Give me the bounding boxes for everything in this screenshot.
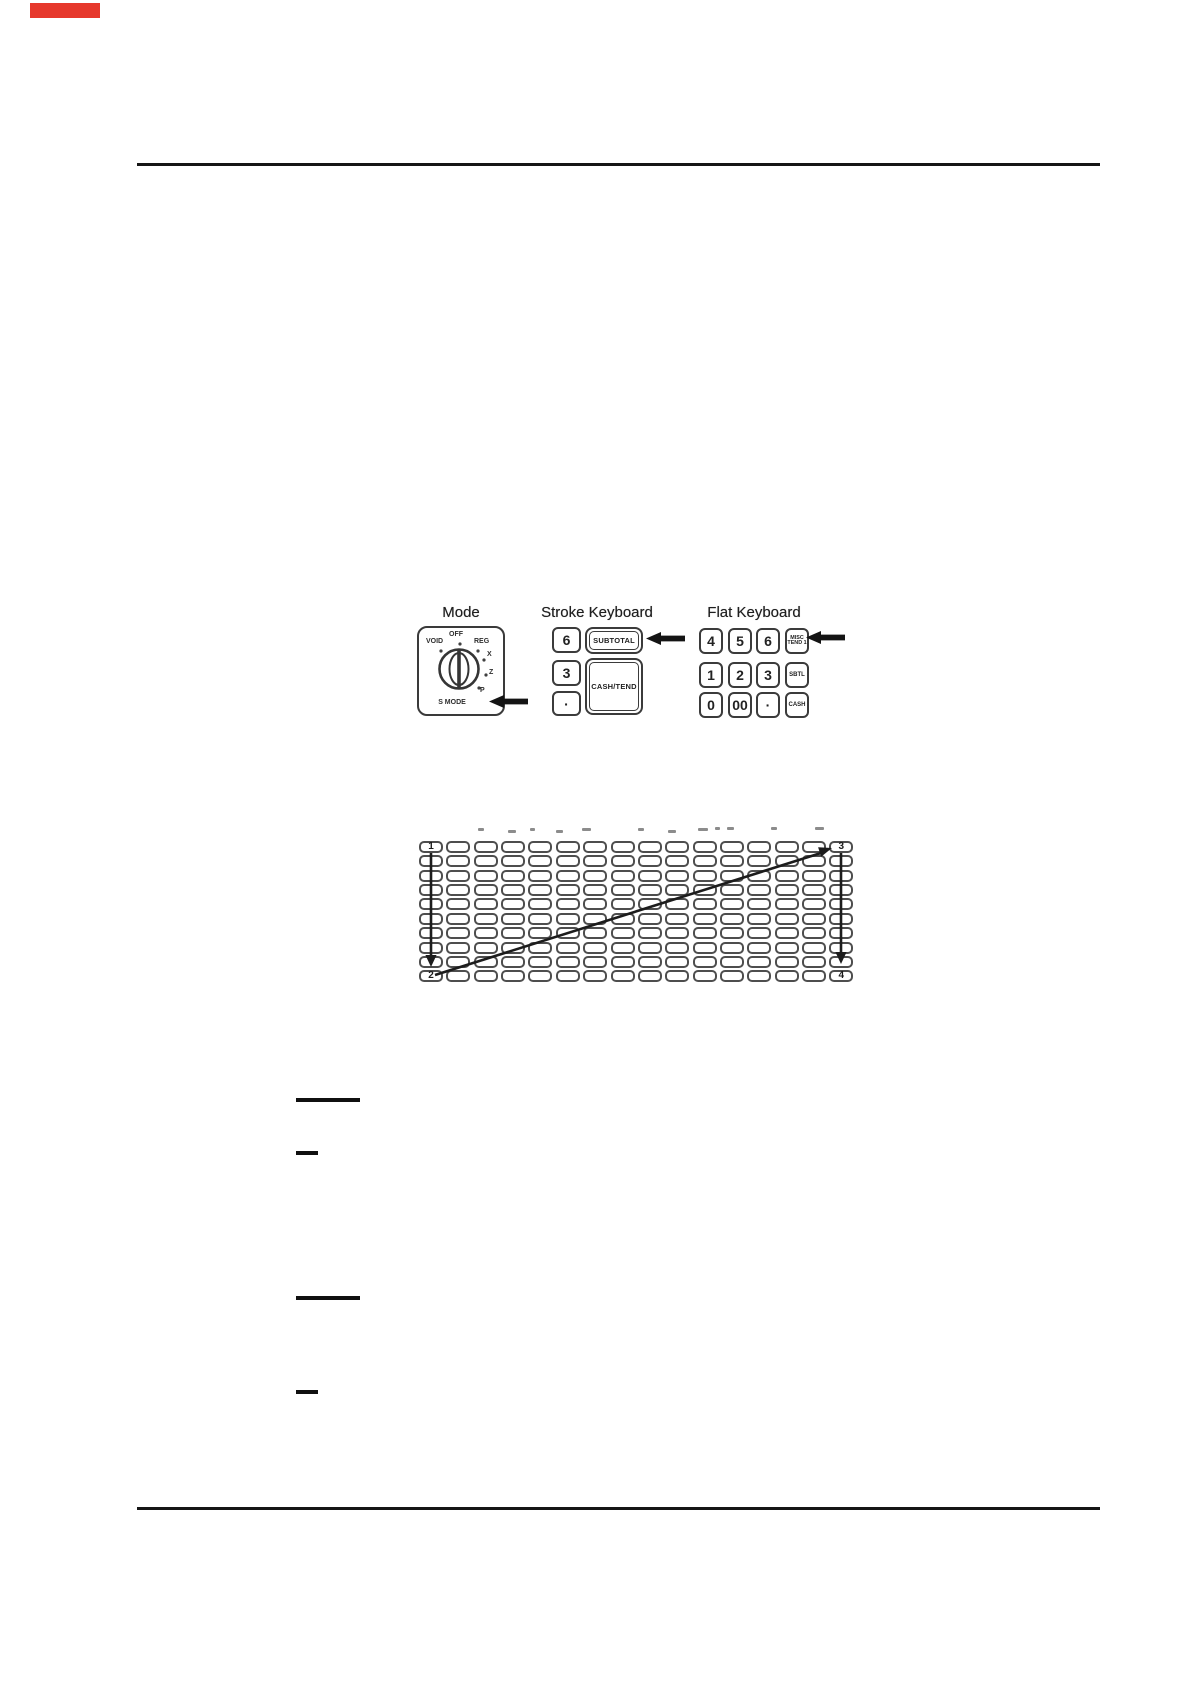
grid-cell: [638, 970, 662, 982]
grid-cell: [528, 927, 552, 939]
grid-cell: [419, 898, 443, 910]
grid-cell: [638, 942, 662, 954]
grid-cell: [720, 870, 744, 882]
grid-cell: [802, 884, 826, 896]
grid-cell: [747, 942, 771, 954]
grid-cell: [747, 927, 771, 939]
flat-key-4: 4: [699, 628, 723, 654]
grid-cell: [556, 913, 580, 925]
grid-cell: [775, 855, 799, 867]
grid-cell: [720, 841, 744, 853]
grid-cell: [446, 942, 470, 954]
grid-cell: [775, 870, 799, 882]
grid-cell: [611, 884, 635, 896]
grid-cell: [583, 942, 607, 954]
grid-cell: [829, 942, 853, 954]
grid-cell: [611, 970, 635, 982]
grid-cell: [802, 956, 826, 968]
grid-cell: [583, 956, 607, 968]
grid-cell: [419, 870, 443, 882]
grid-cell: [501, 841, 525, 853]
key-layout-grid: 1324: [419, 824, 859, 990]
grid-cell: [693, 898, 717, 910]
red-marker-bar: [30, 3, 100, 18]
grid-cell: [802, 942, 826, 954]
grid-cell: [665, 970, 689, 982]
flat-key-0: 0: [699, 692, 723, 718]
grid-cell: [556, 956, 580, 968]
grid-cell: [474, 913, 498, 925]
grid-cell: [611, 870, 635, 882]
stroke-key-cash-tend: CASH/TEND: [585, 658, 643, 715]
grid-cell: [474, 870, 498, 882]
grid-cell: [775, 970, 799, 982]
smudge-mark: [698, 828, 708, 831]
grid-cell: [720, 884, 744, 896]
flat-key-sbtl: SBTL: [785, 662, 809, 688]
grid-corner-cell-3: 3: [829, 841, 853, 853]
grid-cell: [583, 898, 607, 910]
grid-cell: [693, 956, 717, 968]
grid-cell: [693, 841, 717, 853]
flat-key-3: 3: [756, 662, 780, 688]
smudge-mark: [478, 828, 484, 831]
grid-cell: [474, 855, 498, 867]
grid-cell: [528, 884, 552, 896]
smudge-mark: [771, 827, 777, 830]
grid-cell: [665, 927, 689, 939]
blank-underline-2: [296, 1151, 318, 1155]
grid-cell: [802, 855, 826, 867]
grid-cell: [556, 942, 580, 954]
grid-cell: [802, 970, 826, 982]
grid-cell: [802, 913, 826, 925]
grid-cell: [528, 841, 552, 853]
grid-cell: [747, 970, 771, 982]
grid-cell: [829, 927, 853, 939]
grid-cell: [802, 927, 826, 939]
grid-cell: [474, 970, 498, 982]
smudge-mark: [815, 827, 824, 830]
stroke-key-3: 3: [552, 660, 581, 686]
grid-cell: [446, 898, 470, 910]
smudge-mark: [530, 828, 535, 831]
stroke-keyboard-title: Stroke Keyboard: [537, 604, 657, 621]
grid-cell: [474, 942, 498, 954]
grid-cell: [638, 884, 662, 896]
grid-cell: [829, 884, 853, 896]
subtotal-pointer-arrow-icon: [646, 632, 685, 645]
grid-cell: [556, 870, 580, 882]
grid-cell: [583, 841, 607, 853]
grid-cell: [446, 927, 470, 939]
grid-cell: [501, 898, 525, 910]
misc-tend-pointer-arrow-icon: [806, 631, 845, 644]
grid-cell: [638, 841, 662, 853]
grid-cell: [611, 927, 635, 939]
grid-cell: [556, 898, 580, 910]
flat-key-2: 2: [728, 662, 752, 688]
grid-cell: [747, 855, 771, 867]
smudge-mark: [508, 830, 516, 833]
grid-cell: [556, 884, 580, 896]
flat-key-5: 5: [728, 628, 752, 654]
grid-cell: [583, 913, 607, 925]
grid-cell: [720, 855, 744, 867]
grid-cell: [556, 855, 580, 867]
grid-cell: [775, 841, 799, 853]
grid-cell: [802, 841, 826, 853]
grid-cell: [775, 956, 799, 968]
grid-cell: [446, 956, 470, 968]
grid-cell: [611, 898, 635, 910]
grid-cell: [501, 970, 525, 982]
blank-underline-3: [296, 1296, 360, 1300]
grid-cell: [528, 913, 552, 925]
flat-key-1: 1: [699, 662, 723, 688]
grid-cell: [419, 942, 443, 954]
grid-cell: [829, 855, 853, 867]
grid-cell: [747, 956, 771, 968]
grid-cell: [665, 898, 689, 910]
grid-cell: [829, 870, 853, 882]
grid-cell: [583, 870, 607, 882]
grid-cell: [665, 913, 689, 925]
grid-cell: [802, 898, 826, 910]
grid-cell: [528, 942, 552, 954]
grid-cell: [474, 884, 498, 896]
grid-cell: [446, 970, 470, 982]
grid-cell: [829, 913, 853, 925]
grid-cell: [747, 884, 771, 896]
grid-cell: [638, 898, 662, 910]
grid-cell: [720, 898, 744, 910]
bottom-rule: [137, 1507, 1100, 1510]
smudge-mark: [556, 830, 563, 833]
grid-corner-cell-2: 2: [419, 970, 443, 982]
grid-cell: [501, 855, 525, 867]
smudge-mark: [668, 830, 676, 833]
grid-cell: [720, 942, 744, 954]
flat-key-cash: CASH: [785, 692, 809, 718]
grid-cell: [775, 884, 799, 896]
grid-cell: [611, 855, 635, 867]
grid-cell: [693, 942, 717, 954]
s-mode-pointer-arrow-icon: [489, 695, 528, 708]
grid-cell: [474, 898, 498, 910]
grid-corner-cell-1: 1: [419, 841, 443, 853]
flat-keyboard-title: Flat Keyboard: [694, 604, 814, 621]
grid-cell: [665, 884, 689, 896]
stroke-key-subtotal: SUBTOTAL: [585, 627, 643, 654]
grid-cell: [474, 956, 498, 968]
grid-cell: [556, 841, 580, 853]
grid-cell: [611, 913, 635, 925]
grid-cell: [665, 870, 689, 882]
grid-cell: [747, 913, 771, 925]
grid-cell: [693, 855, 717, 867]
grid-cell: [829, 956, 853, 968]
grid-cell: [528, 970, 552, 982]
flat-key-6: 6: [756, 628, 780, 654]
grid-cell: [638, 870, 662, 882]
grid-cell: [775, 898, 799, 910]
grid-cell: [775, 913, 799, 925]
blank-underline-1: [296, 1098, 360, 1102]
grid-cell: [638, 956, 662, 968]
smudge-mark: [715, 827, 720, 830]
grid-cell: [638, 855, 662, 867]
grid-cell: [528, 956, 552, 968]
grid-cell: [720, 927, 744, 939]
grid-cell: [501, 956, 525, 968]
blank-underline-4: [296, 1390, 318, 1394]
grid-cell: [501, 884, 525, 896]
grid-cell: [446, 884, 470, 896]
grid-cell: [802, 870, 826, 882]
grid-cell: [501, 942, 525, 954]
grid-cell: [474, 927, 498, 939]
grid-cell: [474, 841, 498, 853]
grid-cell: [747, 870, 771, 882]
grid-cell: [693, 870, 717, 882]
grid-cell: [611, 956, 635, 968]
flat-key-·: ·: [756, 692, 780, 718]
grid-cell: [419, 884, 443, 896]
grid-cell: [611, 942, 635, 954]
grid-cell: [556, 970, 580, 982]
grid-cell: [419, 913, 443, 925]
grid-cell: [693, 927, 717, 939]
smudge-mark: [638, 828, 644, 831]
grid-cell: [747, 898, 771, 910]
grid-cell: [446, 841, 470, 853]
grid-cell: [583, 884, 607, 896]
grid-cell: [446, 855, 470, 867]
grid-cell: [419, 855, 443, 867]
mode-title: Mode: [417, 604, 505, 621]
grid-cell: [720, 913, 744, 925]
grid-cell: [638, 927, 662, 939]
grid-cell: [720, 956, 744, 968]
grid-cell: [665, 841, 689, 853]
grid-cell: [638, 913, 662, 925]
smudge-mark: [582, 828, 591, 831]
stroke-key-6: 6: [552, 627, 581, 653]
grid-cell: [501, 870, 525, 882]
grid-cell: [419, 927, 443, 939]
grid-cell: [665, 942, 689, 954]
grid-corner-cell-4: 4: [829, 970, 853, 982]
grid-cell: [583, 970, 607, 982]
scanned-manual-page: Mode Stroke Keyboard Flat Keyboard VOID …: [0, 0, 1191, 1684]
flat-key-00: 00: [728, 692, 752, 718]
grid-cell: [419, 956, 443, 968]
grid-cell: [611, 841, 635, 853]
grid-cell: [501, 913, 525, 925]
grid-cell: [829, 898, 853, 910]
grid-cell: [501, 927, 525, 939]
grid-cell: [775, 927, 799, 939]
grid-cell: [665, 855, 689, 867]
grid-cell: [693, 913, 717, 925]
grid-cell: [583, 927, 607, 939]
stroke-key-dot: ·: [552, 691, 581, 716]
grid-cell: [665, 956, 689, 968]
grid-cell: [446, 913, 470, 925]
grid-cell: [583, 855, 607, 867]
smudge-mark: [727, 827, 734, 830]
grid-cell: [747, 841, 771, 853]
grid-cell: [720, 970, 744, 982]
grid-cell: [693, 970, 717, 982]
grid-cell: [528, 855, 552, 867]
grid-cell: [775, 942, 799, 954]
grid-cell: [556, 927, 580, 939]
grid-cell: [528, 898, 552, 910]
grid-cell: [693, 884, 717, 896]
grid-cell: [528, 870, 552, 882]
grid-cell: [446, 870, 470, 882]
top-rule: [137, 163, 1100, 166]
